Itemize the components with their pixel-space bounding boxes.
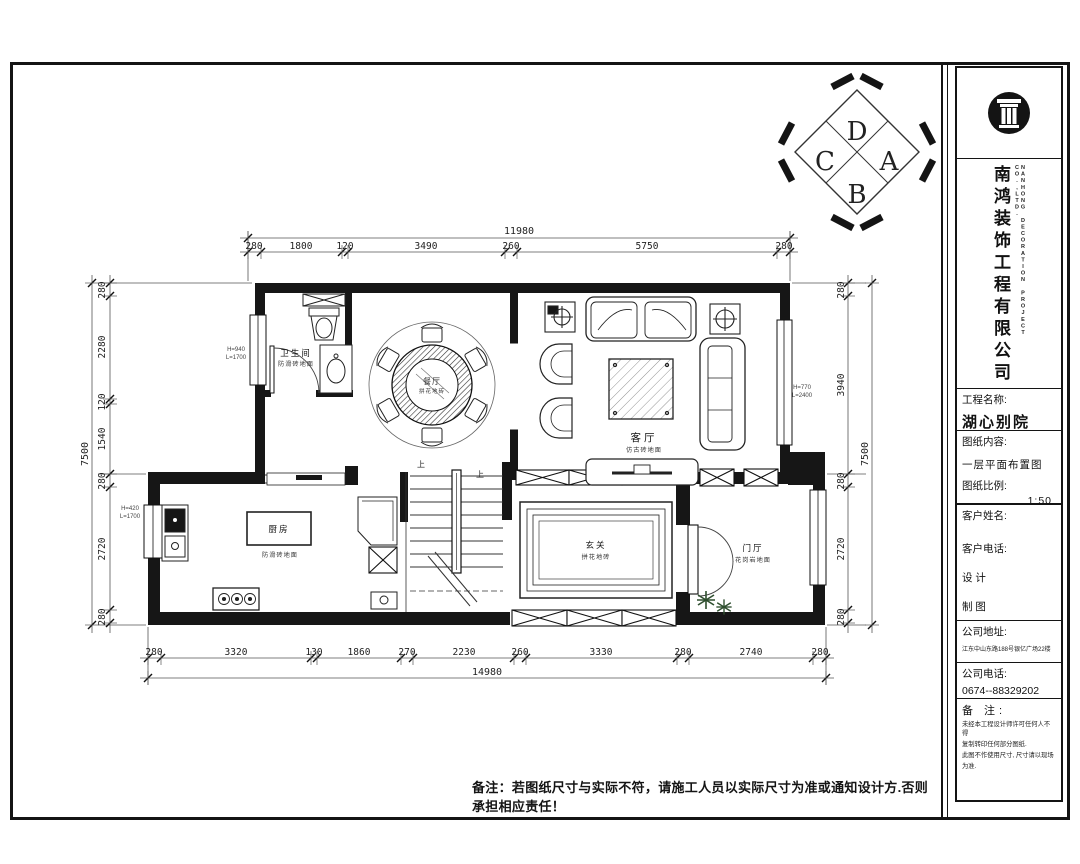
company-name-block: 南鸿装饰工程有限公司 NANHONG DECORATION PROJECT CO…: [957, 158, 1061, 388]
remark-line-2: 复制转印任何部分图纸.: [962, 740, 1056, 749]
drafter-label: 制 图: [962, 599, 1056, 614]
scale-label: 图纸比例:: [962, 478, 1056, 493]
designer-label: 设 计: [962, 570, 1056, 585]
project-name-value: 湖心别院: [962, 411, 1056, 432]
content-value: 一层平面布置图: [962, 457, 1056, 472]
address-value: 江东中山东路188号银亿广场22楼: [962, 644, 1056, 653]
titleblock-separator-line-2: [947, 62, 948, 820]
content-label: 图纸内容:: [962, 434, 1056, 449]
titleblock-separator-line: [941, 62, 943, 820]
phone-value: 0674--88329202: [962, 685, 1056, 697]
remark-line-1: 未经本工程设计师许可任何人不得: [962, 720, 1056, 738]
remark-line-3: 此图不作使用尺寸, 尺寸请以现场: [962, 751, 1056, 760]
remark-line-4: 为准.: [962, 762, 1056, 771]
drawing-sheet: D A B C 11980 280 1800 120 3490 260: [0, 0, 1080, 864]
phone-label: 公司电话:: [962, 666, 1056, 681]
company-phone-cell: 公司电话: 0674--88329202: [957, 662, 1061, 698]
client-name-label: 客户姓名:: [962, 508, 1056, 523]
column-logo-icon: [987, 91, 1031, 135]
client-phone-label: 客户电话:: [962, 541, 1056, 556]
remark-cell: 备 注: 未经本工程设计师许可任何人不得 复制转印任何部分图纸. 此图不作使用尺…: [957, 698, 1061, 800]
company-address-cell: 公司地址: 江东中山东路188号银亿广场22楼: [957, 620, 1061, 662]
client-cell: 客户姓名: 客户电话: 设 计 制 图: [957, 503, 1061, 620]
sheet-border: [10, 62, 1070, 820]
company-logo: [957, 68, 1061, 158]
company-name-en: NANHONG DECORATION PROJECT CO.,LTD.: [1014, 165, 1026, 385]
remark-label: 备 注:: [962, 702, 1056, 718]
footer-note: 备注：若图纸尺寸与实际不符，请施工人员以实际尺寸为准或通知设计方.否则承担相应责…: [472, 777, 938, 815]
project-name-label: 工程名称:: [962, 392, 1056, 407]
address-label: 公司地址:: [962, 624, 1056, 639]
company-name-cn: 南鸿装饰工程有限公司: [992, 165, 1009, 385]
title-block: 南鸿装饰工程有限公司 NANHONG DECORATION PROJECT CO…: [955, 66, 1063, 802]
project-name-cell: 工程名称: 湖心别院: [957, 388, 1061, 430]
drawing-content-cell: 图纸内容: 一层平面布置图 图纸比例: 1:50: [957, 430, 1061, 503]
